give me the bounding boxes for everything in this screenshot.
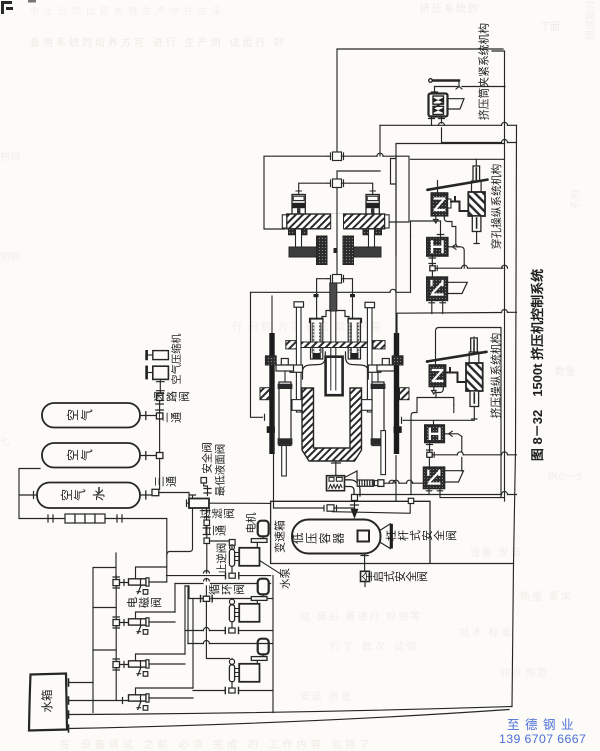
svg-text:安全阀: 安全阀 — [201, 442, 214, 474]
svg-text:例0一5: 例0一5 — [548, 470, 583, 483]
svg-text:139 6707 6667: 139 6707 6667 — [499, 732, 586, 746]
svg-text:变速箱: 变速箱 — [273, 520, 287, 553]
svg-text:电机: 电机 — [245, 512, 258, 533]
svg-text:技术 标准: 技术 标准 — [460, 626, 513, 639]
svg-text:三通: 三通 — [205, 525, 228, 536]
svg-text:质量 要求: 质量 要求 — [520, 591, 573, 603]
svg-text:空气: 空气 — [60, 488, 87, 501]
svg-text:空气压缩机: 空气压缩机 — [170, 334, 183, 385]
svg-text:七: 七 — [0, 436, 10, 448]
svg-text:止逆阀: 止逆阀 — [215, 543, 228, 575]
svg-text:三通: 三通 — [154, 475, 178, 487]
svg-text:组成部分: 组成部分 — [584, 0, 597, 40]
svg-text:杠杆式安全阀: 杠杆式安全阀 — [385, 529, 458, 541]
svg-text:全启式安全阀: 全启式安全阀 — [360, 571, 429, 582]
svg-text:最低液面阀: 最低液面阀 — [214, 444, 227, 497]
svg-text:中上已然比较成熟生产中往往采: 中上已然比较成熟生产中往往采 — [30, 5, 226, 16]
svg-text:了面: 了面 — [540, 21, 560, 33]
svg-text:在 设备调试 之前 必须 完成 的 工作内容 包括了: 在 设备调试 之前 必须 完成 的 工作内容 包括了 — [60, 738, 373, 751]
svg-text:验收 规范: 验收 规范 — [500, 666, 548, 679]
svg-text:安装 质量: 安装 质量 — [300, 690, 353, 703]
svg-text:挤压筒夹紧系统机构: 挤压筒夹紧系统机构 — [477, 23, 491, 120]
svg-text:行了 数次 试验: 行了 数次 试验 — [330, 640, 420, 653]
svg-text:挤压操纵系统机构: 挤压操纵系统机构 — [490, 332, 503, 418]
svg-text:知的: 知的 — [0, 250, 20, 263]
svg-text:组 装后 再进行 检验等: 组 装后 再进行 检验等 — [300, 610, 422, 623]
svg-text:电磁阀: 电磁阀 — [126, 596, 163, 608]
svg-text:设备 安装: 设备 安装 — [470, 546, 523, 559]
svg-text:至德钢业: 至德钢业 — [507, 717, 579, 732]
svg-text:图 8－32 1500t 挤压机控制系统: 图 8－32 1500t 挤压机控制系统 — [530, 269, 545, 461]
svg-text:闭路阀: 闭路阀 — [153, 390, 191, 403]
svg-text:挤压系统的: 挤压系统的 — [420, 2, 480, 15]
svg-text:不的: 不的 — [569, 190, 582, 210]
svg-text:水泵: 水泵 — [280, 568, 292, 589]
svg-text:水箱: 水箱 — [40, 690, 54, 713]
svg-text:水: 水 — [92, 489, 106, 501]
svg-text:物则: 物则 — [0, 150, 20, 163]
svg-text:数量: 数量 — [555, 365, 575, 378]
svg-text:过滤阀: 过滤阀 — [199, 507, 236, 519]
svg-text:循环阀: 循环阀 — [208, 583, 246, 596]
svg-text:穿孔操纵系统机构: 穿孔操纵系统机构 — [490, 163, 503, 249]
svg-text:备用系统的培养方可 进行 生产测 试运行 好: 备用系统的培养方可 进行 生产测 试运行 好 — [30, 36, 287, 49]
